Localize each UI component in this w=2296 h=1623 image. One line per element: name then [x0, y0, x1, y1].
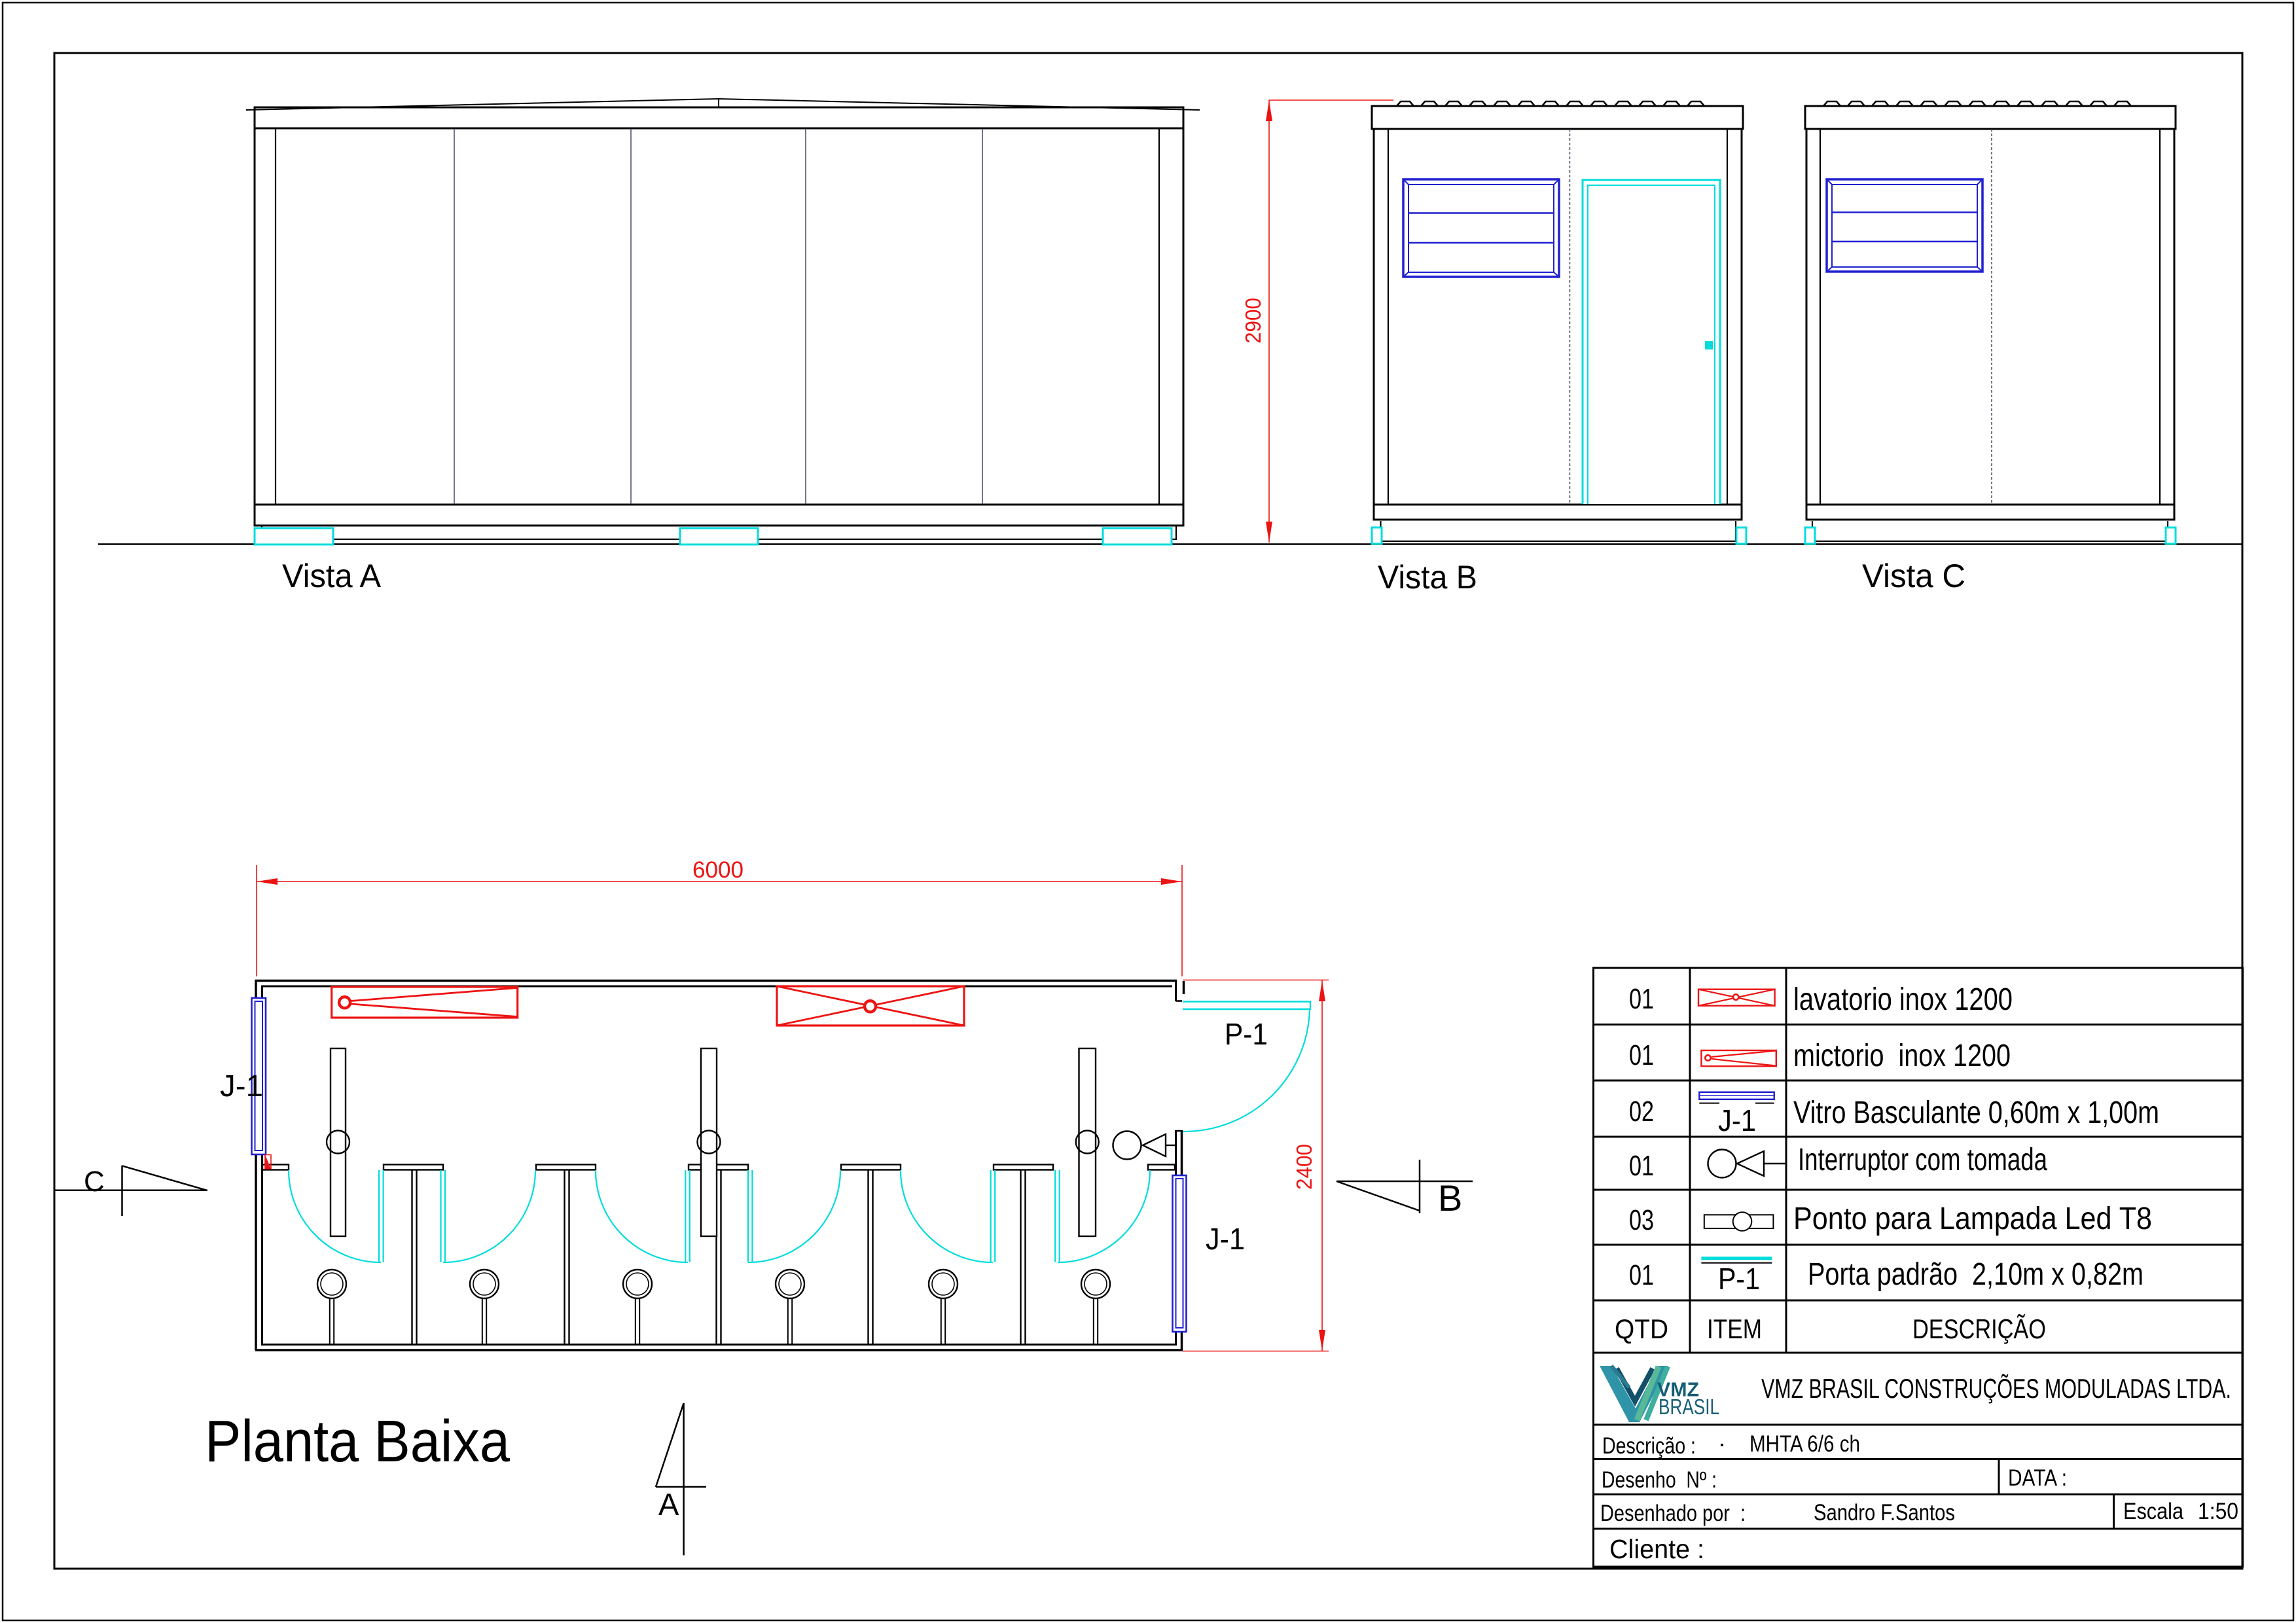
svg-text:Porta padrão 2,10m x 0,82m: Porta padrão 2,10m x 0,82m	[1808, 1257, 2144, 1292]
svg-text:01: 01	[1629, 1039, 1654, 1071]
svg-text:Vista B: Vista B	[1378, 559, 1477, 596]
svg-text:Vista A: Vista A	[282, 558, 382, 594]
svg-text:01: 01	[1629, 1150, 1654, 1182]
svg-text:QTD: QTD	[1615, 1313, 1668, 1344]
svg-text:Sandro F.Santos: Sandro F.Santos	[1814, 1500, 1955, 1525]
svg-text:J-1: J-1	[1718, 1103, 1756, 1137]
svg-text:DATA :: DATA :	[2008, 1465, 2067, 1491]
svg-text:Interruptor com tomada: Interruptor com tomada	[1798, 1143, 2047, 1177]
svg-text:ITEM: ITEM	[1707, 1313, 1762, 1344]
svg-text:1:50: 1:50	[2198, 1499, 2238, 1524]
svg-text:DESCRIÇÃO: DESCRIÇÃO	[1912, 1313, 2046, 1344]
svg-text:Vista C: Vista C	[1862, 558, 1965, 594]
svg-text:Cliente :: Cliente :	[1609, 1534, 1704, 1564]
svg-text:lavatorio inox 1200: lavatorio inox 1200	[1793, 982, 2013, 1017]
svg-text:C: C	[84, 1166, 105, 1198]
svg-text:J-1: J-1	[1206, 1222, 1245, 1256]
svg-text:P-1: P-1	[1225, 1017, 1268, 1051]
svg-text:J-1: J-1	[220, 1069, 263, 1103]
svg-text:01: 01	[1629, 1259, 1654, 1291]
svg-text:6000: 6000	[692, 857, 744, 883]
svg-text:MHTA 6/6 ch: MHTA 6/6 ch	[1749, 1431, 1860, 1457]
svg-text:02: 02	[1629, 1096, 1654, 1128]
svg-text:03: 03	[1629, 1204, 1654, 1236]
svg-text:BRASIL: BRASIL	[1659, 1395, 1719, 1419]
svg-text:Planta Baixa: Planta Baixa	[205, 1409, 511, 1474]
svg-text:Desenho Nº :: Desenho Nº :	[1602, 1467, 1717, 1493]
svg-text:Escala: Escala	[2123, 1499, 2183, 1524]
svg-text:A: A	[658, 1487, 679, 1522]
svg-text:Descrição :: Descrição :	[1602, 1433, 1696, 1459]
svg-text:Ponto para Lampada Led T8: Ponto para Lampada Led T8	[1793, 1202, 2152, 1236]
svg-text:01: 01	[1629, 983, 1654, 1015]
svg-text:Vitro Basculante 0,60m x 1,00m: Vitro Basculante 0,60m x 1,00m	[1793, 1096, 2159, 1130]
svg-text:2400: 2400	[1292, 1144, 1316, 1190]
svg-text:Desenhado por :: Desenhado por :	[1600, 1501, 1746, 1526]
svg-text:2900: 2900	[1241, 298, 1265, 344]
svg-text:B: B	[1438, 1177, 1462, 1219]
svg-text:P-1: P-1	[1718, 1262, 1760, 1296]
svg-text:VMZ BRASIL CONSTRUÇÕES MODULAD: VMZ BRASIL CONSTRUÇÕES MODULADAS LTDA.	[1761, 1373, 2231, 1404]
svg-text:mictorio inox 1200: mictorio inox 1200	[1793, 1039, 2011, 1073]
